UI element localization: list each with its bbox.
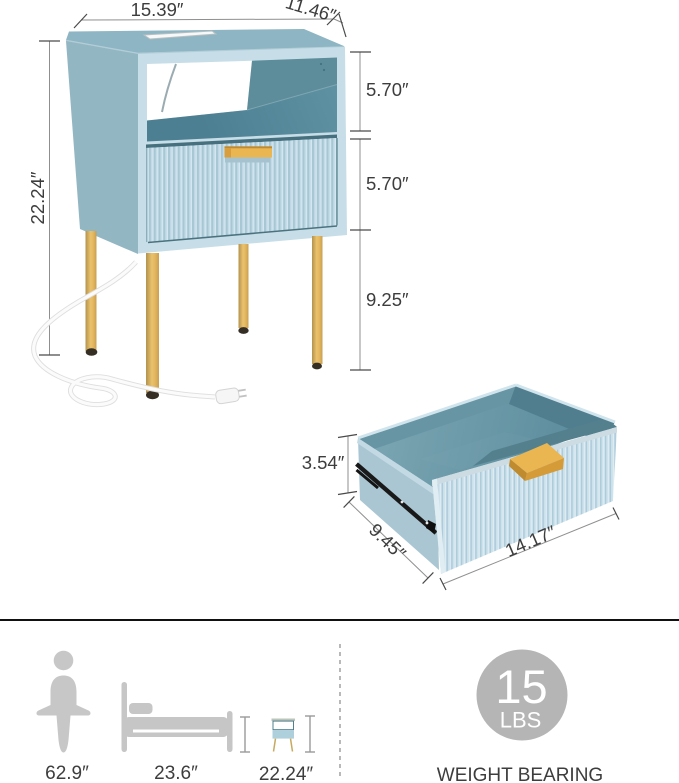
svg-text:LBS: LBS — [500, 708, 542, 733]
svg-text:22.24″: 22.24″ — [27, 171, 48, 224]
svg-text:15.39″: 15.39″ — [131, 0, 184, 20]
svg-text:62.9″: 62.9″ — [45, 763, 89, 783]
svg-text:11.46″: 11.46″ — [283, 0, 339, 26]
svg-text:5.70″: 5.70″ — [366, 173, 409, 194]
svg-text:3.54″: 3.54″ — [302, 452, 345, 473]
svg-text:15: 15 — [495, 660, 547, 713]
svg-text:23.6″: 23.6″ — [154, 763, 198, 783]
svg-text:22.24″: 22.24″ — [259, 764, 314, 783]
svg-text:5.70″: 5.70″ — [366, 79, 409, 100]
svg-text:9.25″: 9.25″ — [366, 289, 409, 310]
svg-text:WEIGHT BEARING: WEIGHT BEARING — [437, 765, 603, 783]
